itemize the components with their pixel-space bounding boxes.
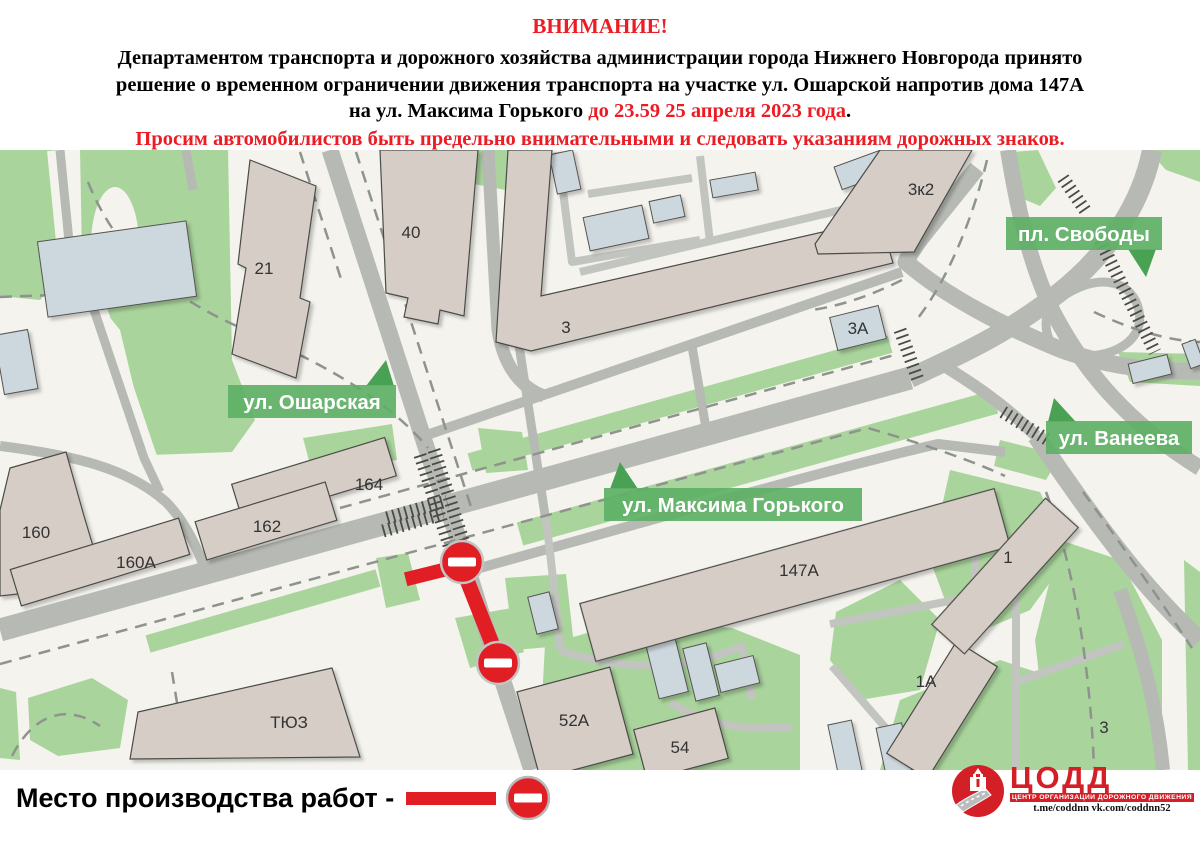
notice-title: ВНИМАНИЕ! [0, 14, 1200, 39]
legend-text: Место производства работ - [16, 783, 394, 814]
building-label: 160А [116, 553, 156, 572]
building-label: ТЮЗ [270, 713, 308, 732]
no-entry-icon [504, 774, 552, 822]
city-map: 21 40 3 3к2 3А 164 162 160 160А ТЮЗ 147А… [0, 150, 1200, 770]
map-canvas: 21 40 3 3к2 3А 164 162 160 160А ТЮЗ 147А… [0, 150, 1200, 770]
no-entry-icon [441, 541, 483, 583]
logo-links: t.me/coddnn vk.com/coddnn52 [1010, 803, 1194, 814]
logo-brand: ЦОДД [1010, 763, 1194, 793]
building-label: 1А [916, 672, 937, 691]
building-label: 3 [561, 318, 570, 337]
street-name: пл. Свободы [1018, 223, 1150, 246]
building-label: 147А [779, 561, 819, 580]
logo-subtitle: ЦЕНТР ОРГАНИЗАЦИИ ДОРОЖНОГО ДВИЖЕНИЯ [1010, 793, 1194, 802]
building-label: 3А [848, 319, 869, 338]
building-label: 160 [22, 523, 50, 542]
notice-line-2: решение о временном ограничении движения… [0, 72, 1200, 99]
building-label: 3к2 [908, 180, 934, 199]
closure-line-sample [406, 792, 496, 805]
notice-line-3: на ул. Максима Горького до 23.59 25 апре… [0, 98, 1200, 125]
no-entry-icon [477, 642, 519, 684]
notice-line-3-black: на ул. Максима Горького [349, 100, 588, 122]
coda-emblem-icon [950, 763, 1006, 819]
legend: Место производства работ - [16, 774, 552, 822]
building-label: 1 [1003, 548, 1012, 567]
notice-line-1: Департаментом транспорта и дорожного хоз… [0, 45, 1200, 72]
notice-header: ВНИМАНИЕ! Департаментом транспорта и дор… [0, 14, 1200, 153]
building-label: 52А [559, 711, 590, 730]
building-label: 40 [402, 223, 421, 242]
traffic-notice-page: ВНИМАНИЕ! Департаментом транспорта и дор… [0, 0, 1200, 843]
building-label: 3 [1099, 718, 1108, 737]
building-label: 164 [355, 475, 383, 494]
street-name: ул. Ванеева [1059, 427, 1180, 450]
building-label: 54 [671, 738, 690, 757]
street-name: ул. Ошарская [243, 391, 381, 414]
notice-warning: Просим автомобилистов быть предельно вни… [0, 126, 1200, 153]
building-label: 162 [253, 517, 281, 536]
building-label: 21 [255, 259, 274, 278]
street-name: ул. Максима Горького [622, 494, 844, 517]
notice-line-3-tail: . [846, 100, 851, 122]
notice-deadline: до 23.59 25 апреля 2023 года [588, 100, 846, 122]
coda-logo: ЦОДД ЦЕНТР ОРГАНИЗАЦИИ ДОРОЖНОГО ДВИЖЕНИ… [950, 763, 1194, 819]
